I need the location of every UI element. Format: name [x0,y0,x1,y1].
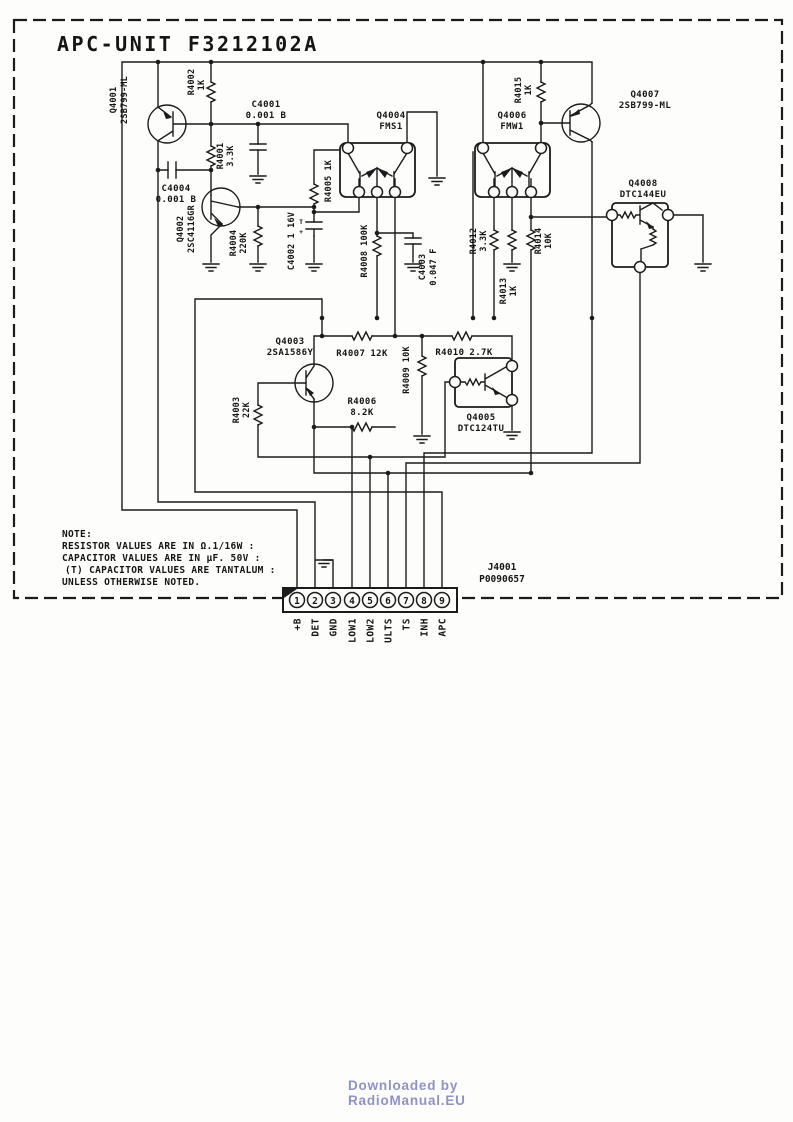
component-labels: Q4001 2SB799-ML Q4002 2SC4116GR R4002 1K… [109,69,554,424]
pin-label: APC [438,618,449,637]
pin-number: 2 [312,596,318,607]
q4001-part-label: 2SB799-ML [120,76,130,124]
c4004-value-label: 0.001 B [156,195,197,205]
pin-number: 7 [403,596,409,607]
c4001-ref-label: C4001 [251,100,280,110]
q4001-ref-label: Q4001 [109,87,119,114]
r4002-symbol [207,82,215,102]
connector-ref-label: J4001 [488,562,517,573]
r4012-ref-label: R4012 [469,228,479,255]
r4014-value-label: 10K [544,232,554,249]
c4002-symbol [306,222,322,236]
q4002-ref-label: Q4002 [176,216,186,243]
note-line-3: (T) CAPACITOR VALUES ARE TANTALUM : [65,565,276,576]
c4003-value-label: 0.047 F [429,248,439,285]
pin-number: 3 [330,596,336,607]
r4012-symbol [490,230,498,250]
r4005-label: R40051K [324,159,334,202]
pin-label: LOW2 [366,618,377,643]
q4007-ref-label: Q4007 [630,90,659,100]
pin-label: TS [402,618,413,630]
pin-number: 4 [349,596,355,607]
c4003-ref-label: C4003 [418,254,428,281]
q4005-package [450,358,518,407]
wires [122,62,703,592]
note-line-1: RESISTOR VALUES ARE IN Ω.1/16W : [62,541,255,552]
q4006-ref-label: Q4006 [497,111,526,121]
r4001-value-label: 3.3K [226,145,236,167]
schematic-page: APC-UNIT F3212102A T + [0,0,793,1122]
q4004-ref-label: Q4004 [376,111,405,121]
note-line-2: CAPACITOR VALUES ARE IN µF. 50V : [62,553,261,564]
footer-line-1: Downloaded by [348,1078,458,1093]
c4004-ref-label: C4004 [161,184,190,194]
r4009-label: R400910K [402,346,412,394]
r4001-ref-label: R4001 [216,143,226,170]
r4015-ref-label: R4015 [514,77,524,104]
pin-number: 9 [439,596,445,607]
q4008-ref-label: Q4008 [628,179,657,189]
pin-label: LOW1 [348,618,359,643]
c4004-symbol [168,162,176,178]
r4002-ref-label: R4002 [187,69,197,96]
pin-number: 5 [367,596,373,607]
q4003-part-label: 2SA1586Y [267,348,314,358]
r4008-label: R4008100K [360,224,370,278]
r4003-symbol [254,405,262,425]
r4007-label: R400712K [336,349,388,359]
q4006-part-label: FMW1 [500,122,523,132]
q4008-package [607,203,674,273]
c4001-value-label: 0.001 B [246,111,287,121]
r4006-value-label: 8.2K [350,408,373,418]
connector-j4001: J4001 P0090657 1 +B 2 DET 3 GND 4 LOW1 5… [283,562,525,643]
q4003-ref-label: Q4003 [275,337,304,347]
q4004-part-label: FMS1 [379,122,402,132]
q4006-package [475,143,550,198]
ground-symbols [203,176,711,567]
apc-unit-schematic: APC-UNIT F3212102A T + [0,0,793,1122]
q4007-transistor [562,103,600,142]
r4013-value-label: 1K [509,285,519,296]
r4005-symbol [310,184,318,204]
r4004-ref-label: R4004 [229,230,239,257]
note-block: NOTE: RESISTOR VALUES ARE IN Ω.1/16W : C… [62,529,276,588]
r4006-symbol [352,423,372,431]
footer: Downloaded by RadioManual.EU [348,1078,466,1108]
pin-label: ULTS [384,618,395,643]
r4006-ref-label: R4006 [347,397,376,407]
pin-label: INH [420,618,431,637]
connector-pin-2: 2 DET [308,593,323,637]
r4010-label: R40102.7K [435,348,493,358]
connector-pin-9: 9 APC [435,593,450,637]
junction-dots [156,60,595,476]
footer-line-2: RadioManual.EU [348,1093,466,1108]
q4001-transistor [148,105,186,143]
q4005-part-label: DTC124TU [458,424,505,434]
connector-pin-3: 3 GND [326,593,341,637]
r4015-value-label: 1K [524,84,534,95]
c4001-symbol [250,144,266,150]
q4008-part-label: DTC144EU [620,190,667,200]
q4004-package [340,143,415,198]
r4004-symbol [254,226,262,246]
r4001-symbol [207,146,215,166]
r4003-value-label: 22K [242,401,252,418]
r4015-symbol [537,82,545,102]
q4002-transistor [202,188,240,226]
connector-pin-5: 5 LOW2 [363,593,378,643]
c4002-label: C40021 16V [287,212,297,270]
c4002-polarity-mark: + [299,228,303,236]
pin-number: 1 [294,596,300,607]
r4007-symbol [352,332,372,340]
c4002-tantalum-mark: T [299,218,303,226]
connector-pin-4: 4 LOW1 [345,593,360,643]
r4009-symbol [418,356,426,376]
pin-label: DET [311,618,322,637]
pin-number: 6 [385,596,391,607]
q4002-part-label: 2SC4116GR [187,204,197,253]
page-title: APC-UNIT F3212102A [57,32,319,56]
note-heading: NOTE: [62,529,92,540]
r4002-value-label: 1K [197,79,207,90]
q4005-ref-label: Q4005 [466,413,495,423]
pin-number: 8 [421,596,427,607]
connector-part-label: P0090657 [479,574,525,585]
pin-label: GND [329,618,340,637]
q4007-part-label: 2SB799-ML [619,101,672,111]
connector-pin-8: 8 INH [417,593,432,637]
r4013-ref-label: R4013 [499,278,509,305]
c4003-symbol [405,238,421,244]
r4010-symbol [452,332,472,340]
r4014-ref-label: R4014 [534,228,544,255]
r4004-value-label: 220K [239,232,249,254]
r4012-value-label: 3.3K [479,230,489,252]
connector-pin-6: 6 ULTS [381,593,396,643]
note-line-4: UNLESS OTHERWISE NOTED. [62,577,200,588]
r4013-symbol [508,230,516,250]
r4008-symbol [373,236,381,256]
r4003-ref-label: R4003 [232,397,242,424]
pin-label: +B [293,618,304,630]
